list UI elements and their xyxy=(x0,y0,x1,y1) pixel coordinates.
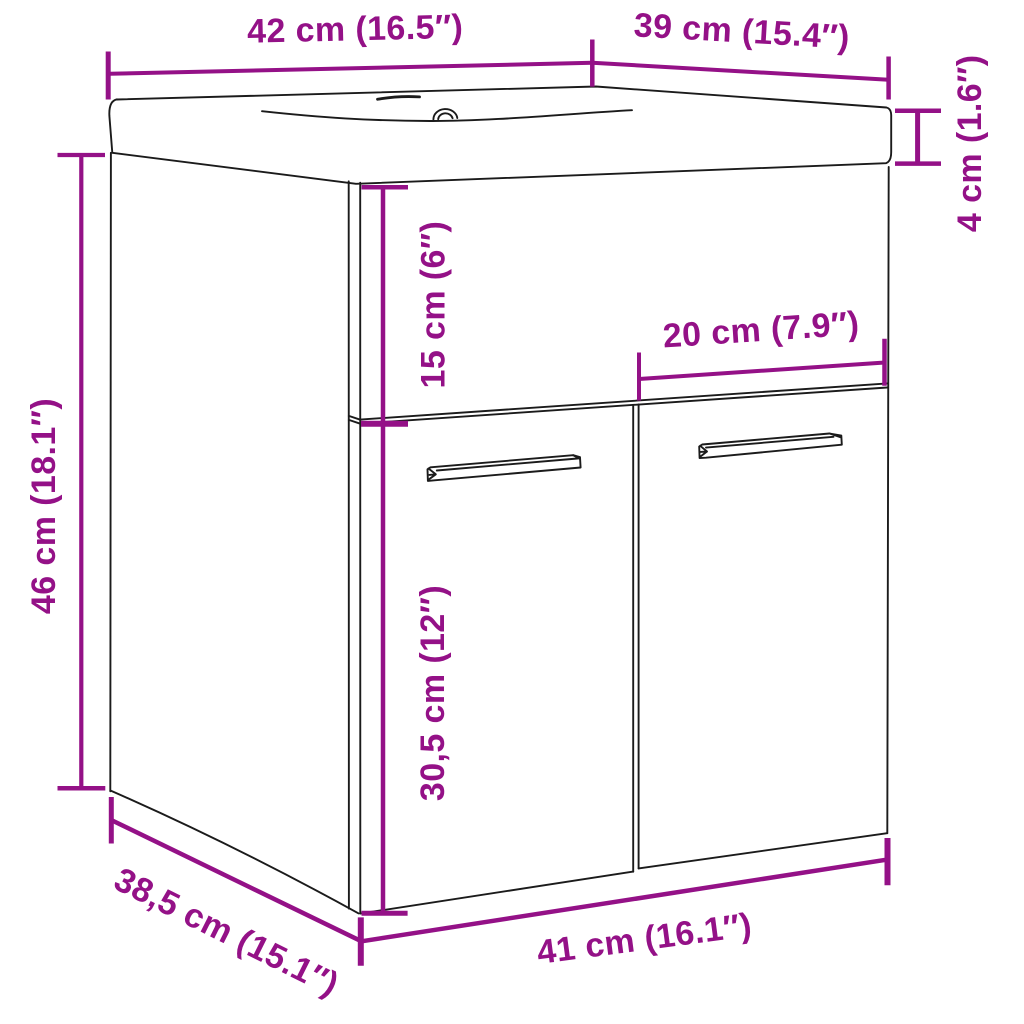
svg-text:4 cm (1.6″): 4 cm (1.6″) xyxy=(951,55,989,233)
svg-text:15 cm (6″): 15 cm (6″) xyxy=(415,221,453,389)
svg-text:42 cm (16.5″): 42 cm (16.5″) xyxy=(247,8,464,51)
svg-text:20 cm (7.9″): 20 cm (7.9″) xyxy=(662,305,861,356)
svg-text:30,5 cm (12″): 30,5 cm (12″) xyxy=(414,585,452,801)
svg-text:38,5 cm (15.1″): 38,5 cm (15.1″) xyxy=(108,860,344,1003)
svg-text:39 cm (15.4″): 39 cm (15.4″) xyxy=(633,6,851,56)
svg-text:41 cm (16.1″): 41 cm (16.1″) xyxy=(535,906,754,972)
svg-text:46 cm (18.1″): 46 cm (18.1″) xyxy=(25,398,63,614)
